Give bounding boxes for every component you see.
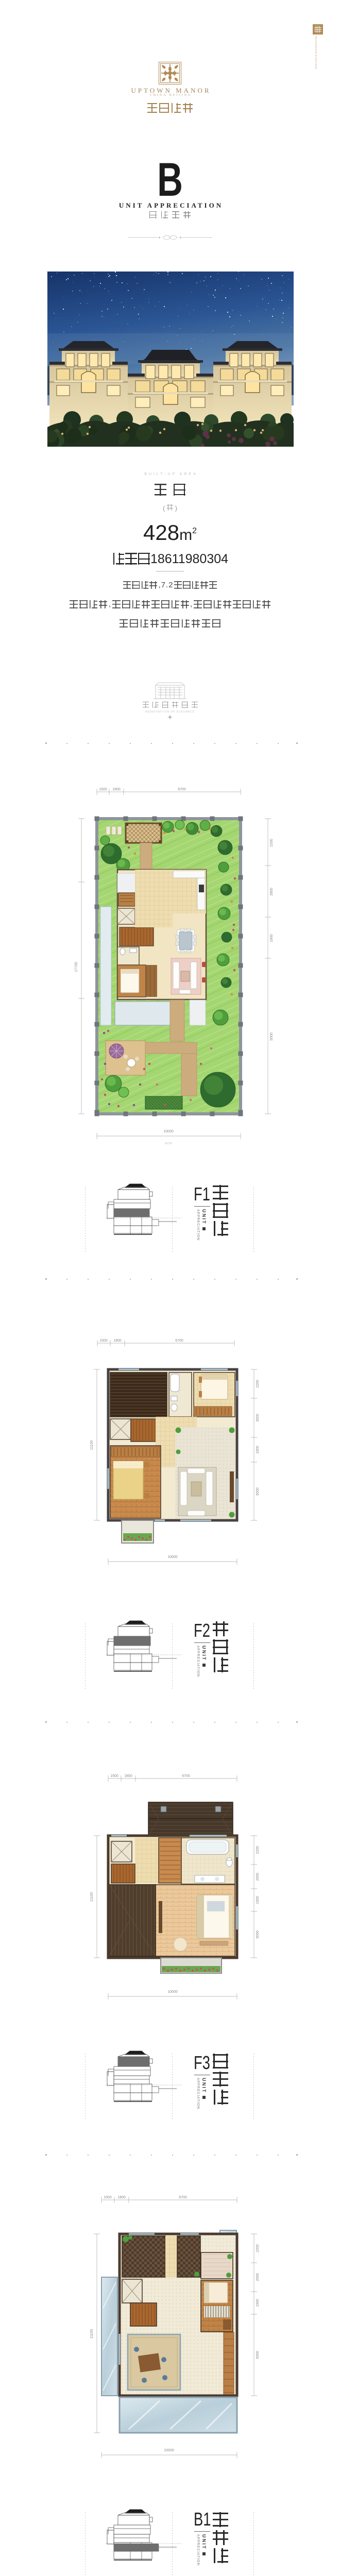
svg-text:1900: 1900: [256, 1446, 260, 1454]
svg-text:10000: 10000: [163, 1130, 174, 1133]
svg-text:6700: 6700: [175, 1339, 183, 1343]
svg-text:5000: 5000: [270, 1032, 274, 1041]
svg-text:1800: 1800: [124, 1774, 132, 1778]
svg-text:1500: 1500: [110, 1774, 118, 1778]
svg-text:2000: 2000: [256, 2273, 260, 2281]
svg-text:3000: 3000: [256, 1414, 260, 1422]
svg-text:5000: 5000: [256, 1930, 260, 1939]
svg-text:2200: 2200: [256, 2244, 260, 2252]
svg-text:1900: 1900: [256, 2299, 260, 2307]
svg-text:1800: 1800: [117, 2196, 126, 2199]
svg-text:6700: 6700: [179, 2196, 187, 2199]
svg-text:11100: 11100: [90, 2329, 94, 2339]
svg-text:2200: 2200: [256, 1380, 260, 1388]
svg-text:6700: 6700: [178, 788, 186, 791]
svg-text:11100: 11100: [90, 1892, 94, 1902]
svg-text:1800: 1800: [112, 788, 121, 791]
svg-text:11100: 11100: [90, 1440, 94, 1450]
svg-text:1900: 1900: [270, 934, 274, 942]
svg-text:43730: 43730: [165, 1142, 172, 1145]
svg-text:1500: 1500: [104, 2196, 112, 2199]
svg-text:10000: 10000: [164, 2449, 174, 2452]
svg-text:1800: 1800: [113, 1339, 122, 1343]
svg-text:17700: 17700: [75, 962, 78, 972]
svg-text:2800: 2800: [270, 888, 274, 896]
svg-text:10000: 10000: [167, 1990, 178, 1994]
svg-text:10000: 10000: [167, 1555, 178, 1559]
svg-text:2000: 2000: [256, 1873, 260, 1881]
svg-text:1500: 1500: [99, 788, 107, 791]
svg-text:5000: 5000: [256, 1487, 260, 1496]
svg-text:1500: 1500: [99, 1339, 108, 1343]
svg-text:5000: 5000: [256, 2351, 260, 2359]
svg-text:6700: 6700: [182, 1774, 190, 1778]
svg-text:2200: 2200: [270, 839, 274, 847]
svg-text:1900: 1900: [256, 1896, 260, 1904]
svg-text:2200: 2200: [256, 1846, 260, 1854]
